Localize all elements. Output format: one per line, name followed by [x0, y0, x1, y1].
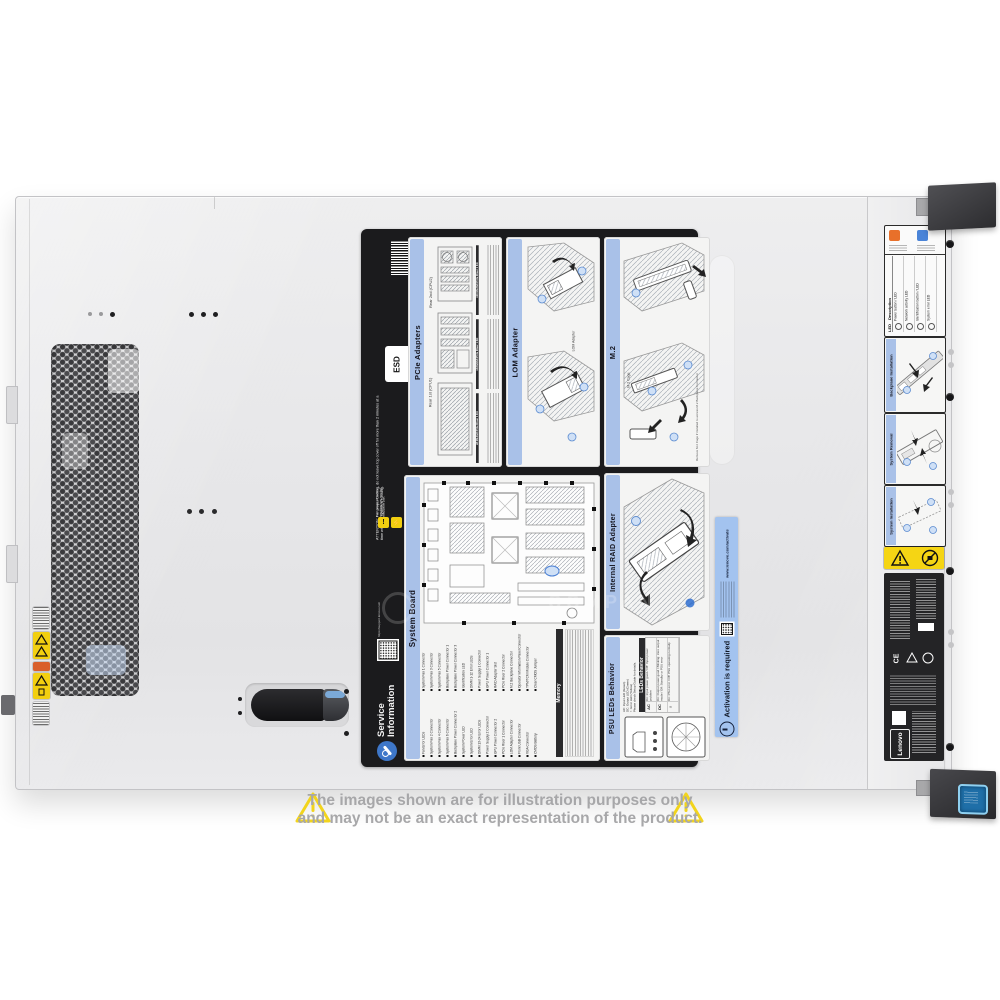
- psu-rear-diagram: [623, 715, 707, 759]
- edge-label-orange: [33, 662, 50, 671]
- rivet: [88, 312, 92, 316]
- backplane-installation-panel: Backplane Installation: [884, 337, 946, 413]
- shock-hazard-icon: ⚡: [391, 517, 402, 528]
- screw-hole: [948, 362, 954, 368]
- activation-label: Activation is required www.lenovo.com/ac…: [715, 517, 738, 737]
- psu-band: PSU LEDs Behavior: [606, 637, 620, 759]
- operator-panel-label: LED Description Power button / LED: [884, 225, 946, 337]
- vent-perforation: [51, 344, 139, 696]
- activation-clock-icon: [719, 721, 734, 736]
- regulatory-qr: [892, 711, 906, 725]
- psu-texts: AC: Input LED (Green)DC: Output LED (Gre…: [623, 562, 707, 712]
- rivet: [212, 509, 217, 514]
- activation-qr-code: [719, 621, 734, 636]
- vent-blocked-patch: [108, 349, 140, 393]
- backplane-installation-diagram: [897, 340, 943, 408]
- rivet: [110, 312, 115, 317]
- regulatory-circle-mark: [922, 652, 934, 664]
- pcie-rear-view-diagram: [436, 243, 474, 461]
- backplane-installation-title: Backplane Installation: [889, 354, 894, 396]
- screw: [946, 567, 954, 575]
- screw: [946, 743, 954, 751]
- server-chassis-top: ESD ATTENTION: For proper cooling, do no…: [15, 196, 952, 790]
- rivet: [213, 312, 218, 317]
- rear-seam: [29, 199, 30, 785]
- vent-blocked-patch: [86, 645, 126, 675]
- psu-table-title: LEDs Behavior: [639, 638, 646, 712]
- lom-adapter-band: LOM Adapter: [508, 239, 522, 465]
- screw-hole: [948, 642, 954, 648]
- no-single-lift-icon: [921, 549, 939, 567]
- rack-latch-top: [928, 182, 996, 231]
- m2-band: M.2: [606, 239, 620, 465]
- pcie-adapters-panel: PCIe Adapters Rear 1st (CPU1) Rear 2nd (…: [408, 237, 502, 467]
- m2-diagram: [622, 241, 706, 463]
- regulatory-label: CE Lenovo: [884, 573, 944, 761]
- warning-triangle-icon: [33, 673, 50, 699]
- riser-kit-table: x8 ML2/x8 PCIe Riser 1 Kit: [476, 393, 498, 463]
- m2-title: M.2: [609, 345, 618, 358]
- top-seam-notch: [214, 197, 215, 209]
- m2-caption: M.2 Cage: [624, 357, 634, 403]
- service-information-title: Service Information: [371, 673, 403, 761]
- cover-release-latch: [251, 689, 325, 721]
- recycle-mark: [906, 652, 918, 664]
- riser-kit-table: x16/x8/x8 PCIe Riser 1 Kit: [476, 319, 498, 389]
- system-board-legend: Fan Error LEDsSystem Fan 1 ConnectorSyst…: [420, 629, 552, 757]
- pcie-adapters-title: PCIe Adapters: [413, 325, 422, 380]
- rivet: [344, 731, 349, 736]
- edge-label-warning: [33, 632, 50, 659]
- disclaimer-text: The images shown are for illustration pu…: [0, 792, 1000, 828]
- ce-mark: CE: [893, 653, 900, 663]
- warning-icons: ! ⚡: [378, 517, 402, 528]
- regulatory-barcode: [918, 623, 934, 631]
- power-off-touchpoint-icon: [917, 230, 928, 241]
- edge-label-warning: [33, 673, 50, 699]
- rear-tab: [6, 386, 18, 424]
- lom-adapter-panel: LOM Adapter: [506, 237, 600, 467]
- system-board-panel: System Board: [404, 475, 600, 761]
- rear-tab: [6, 545, 18, 583]
- system-installation-title: System Installation: [889, 498, 894, 534]
- raid-title: Internal RAID Adapter: [610, 513, 617, 592]
- disclaimer-line2: and may not be an exact representation o…: [0, 810, 1000, 828]
- system-removal-diagram: [897, 416, 943, 480]
- system-installation-diagram: [897, 488, 943, 542]
- regulatory-text-block: [890, 675, 936, 705]
- lom-caption: LOM Adapter: [568, 321, 578, 361]
- system-installation-panel: System Installation: [884, 485, 946, 547]
- warning-triangle-icon: !: [378, 517, 389, 528]
- warning-triangle-icon: [890, 549, 910, 567]
- screw-hole: [948, 489, 954, 495]
- psu-table: AC On: Input power good / Off: Input pow…: [646, 638, 679, 712]
- rivet: [187, 509, 192, 514]
- rivet: [99, 312, 103, 316]
- screw: [946, 240, 954, 248]
- memory-title: Memory: [556, 629, 563, 757]
- service-tools-icon: [377, 741, 397, 761]
- rivet: [238, 711, 242, 715]
- regulatory-text-block: [890, 579, 910, 639]
- screw-hole: [948, 349, 954, 355]
- watermark-text: COMPAN: [548, 592, 657, 613]
- memory-table: Memory: [556, 629, 596, 757]
- activation-title: Activation is required: [722, 640, 731, 717]
- system-removal-title: System Removal: [889, 433, 894, 465]
- screw-hole: [948, 629, 954, 635]
- lom-adapter-diagram: [524, 241, 598, 463]
- watermark-logo: [382, 592, 414, 624]
- system-removal-panel: System Removal: [884, 413, 946, 485]
- psu-leds-panel: PSU LEDs Behavior: [604, 635, 710, 761]
- power-off-warning-text: Turn power off before removing any non-h…: [376, 477, 386, 517]
- vent-blocked-patch: [62, 433, 88, 469]
- psu-title: PSU LEDs Behavior: [610, 662, 617, 733]
- edge-label-white: [33, 702, 49, 725]
- activation-small-print: [720, 581, 734, 617]
- service-label: ESD ATTENTION: For proper cooling, do no…: [361, 229, 698, 767]
- rivet: [199, 509, 204, 514]
- pcie-caption-rear2: Rear 2nd (CPU2): [424, 247, 436, 337]
- screw: [946, 393, 954, 401]
- lom-adapter-title: LOM Adapter: [511, 327, 520, 377]
- m2-note: Remove M.2 Cage if installed to access M…: [696, 357, 708, 461]
- hot-swap-touchpoint-icon: [889, 230, 900, 241]
- warning-triangle-icon: [33, 632, 50, 659]
- server-product-photo: COMPAN COMPAN COMPAN COMPAN: [0, 0, 1000, 1000]
- riser-kit-table: x16 ML2/x8 PCIe Riser 1 Kit: [476, 245, 498, 315]
- pcie-adapters-band: PCIe Adapters: [410, 239, 424, 465]
- esd-text: ESD: [392, 356, 401, 372]
- power-off-warning: Turn power off before removing any non-h…: [375, 477, 399, 517]
- screw-hole: [948, 502, 954, 508]
- rivet: [201, 312, 206, 317]
- pcie-caption-rear1: Rear 1st (CPU1): [424, 337, 436, 447]
- rear-latch-piece: [1, 695, 15, 715]
- m2-panel: M.2: [604, 237, 710, 467]
- lenovo-logo: Lenovo: [890, 729, 910, 759]
- regulatory-text-block: [916, 579, 936, 619]
- psu-drawings: [623, 715, 707, 759]
- cover-groove: [709, 255, 735, 465]
- psu-content: AC: Input LED (Green)DC: Output LED (Gre…: [622, 637, 708, 759]
- activation-url: www.lenovo.com/activate: [724, 529, 729, 578]
- latch-blue-touchpoint: [325, 691, 345, 698]
- rivet: [189, 312, 194, 317]
- certification-marks: CE: [892, 645, 936, 671]
- support-qr-code: [377, 639, 399, 661]
- disclaimer-line1: The images shown are for illustration pu…: [0, 792, 1000, 810]
- edge-label-white: [33, 607, 49, 629]
- operator-panel-table: LED Description Power button / LED: [887, 256, 941, 332]
- regulatory-text-block: [912, 711, 936, 753]
- lift-warning-label: [884, 547, 944, 569]
- rivet: [238, 697, 242, 701]
